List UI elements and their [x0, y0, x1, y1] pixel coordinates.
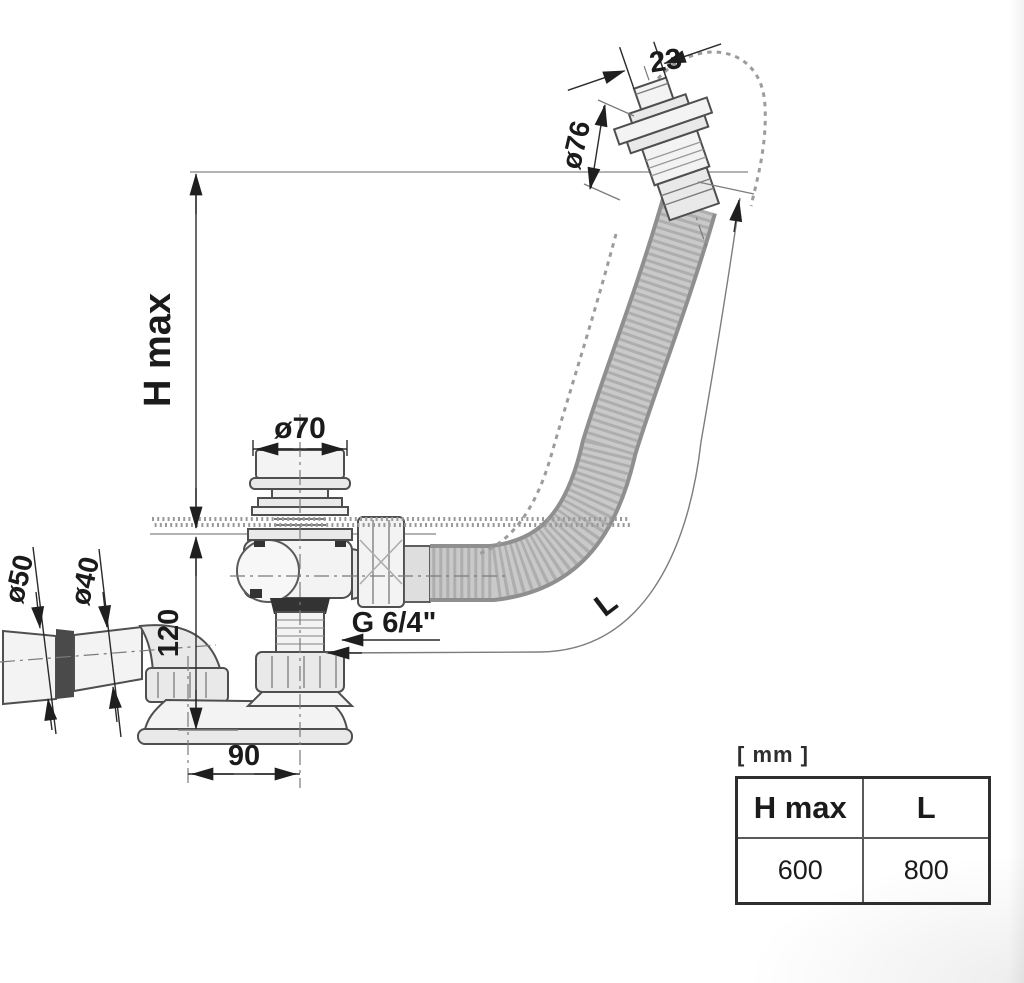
dimension-table: H max L 600 800 [735, 776, 991, 905]
ball-joint [237, 540, 299, 602]
thread-size-callout: G 6/4" [342, 607, 440, 640]
dia70-label: ø70 [274, 412, 326, 445]
table-header-row: H max L [737, 778, 990, 839]
hose-cuff [404, 546, 430, 602]
dim-90-label: 90 [228, 740, 260, 772]
table-header-hmax: H max [737, 778, 864, 839]
table-value-hmax: 600 [737, 838, 864, 904]
waste-plug [250, 450, 350, 525]
table-header-l: L [863, 778, 989, 839]
unit-label: [ mm ] [737, 742, 991, 768]
technical-drawing-page: H max 120 ø70 ø76 23 ø50 [0, 0, 1024, 983]
dim-120-label: 120 [153, 609, 185, 657]
table-value-l: 800 [863, 838, 989, 904]
clip [250, 589, 262, 598]
thread-size-label: G 6/4" [352, 607, 437, 639]
dim-23-label: 23 [647, 43, 684, 80]
spec-table: [ mm ] H max L 600 800 [735, 742, 991, 905]
h-max-label: H max [137, 293, 179, 407]
pipe-gasket-ring [56, 629, 74, 699]
table-row: 600 800 [737, 838, 990, 904]
